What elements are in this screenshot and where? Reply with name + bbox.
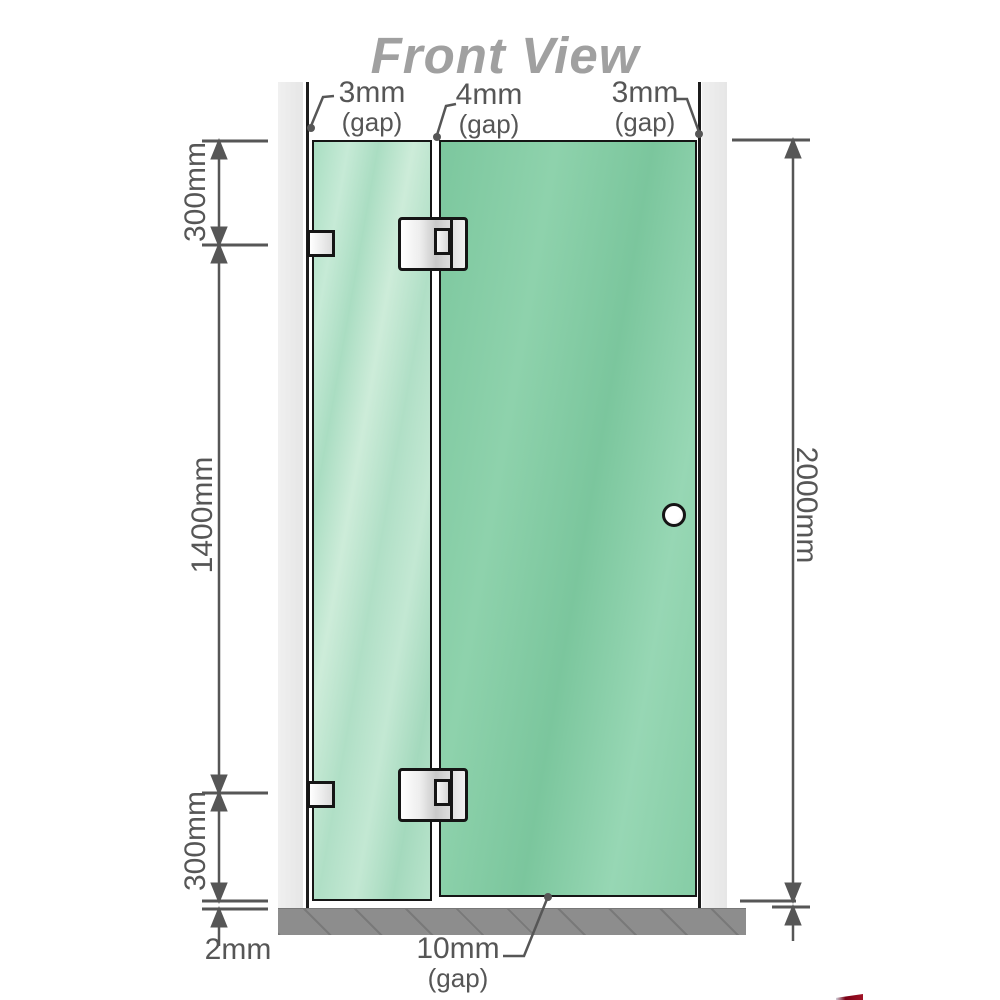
gap-left-value: 3mm bbox=[330, 78, 414, 109]
gap-middle-value: 4mm bbox=[447, 80, 531, 111]
dim-arrow-up bbox=[213, 794, 226, 810]
leader-dot bbox=[544, 893, 552, 901]
gap-left-label: (gap) bbox=[330, 109, 414, 136]
leader-dot bbox=[433, 133, 441, 141]
gap-annotation-bottom: 10mm (gap) bbox=[412, 934, 504, 991]
gap-bottom-value: 10mm bbox=[412, 934, 504, 965]
gap-right-value: 3mm bbox=[603, 78, 687, 109]
dimension-label-2000: 2000mm bbox=[789, 420, 823, 590]
dim-arrow-down bbox=[213, 776, 226, 792]
front-view-diagram: Front View bbox=[0, 0, 1000, 1000]
gap-middle-label: (gap) bbox=[447, 111, 531, 138]
dim-arrow-up bbox=[787, 141, 800, 157]
leader-dot bbox=[307, 124, 315, 132]
dimension-label-1400: 1400mm bbox=[186, 435, 220, 595]
leader-dot bbox=[695, 130, 703, 138]
gap-bottom-label: (gap) bbox=[412, 965, 504, 992]
gap-annotation-middle: 4mm (gap) bbox=[447, 80, 531, 137]
dimension-lines bbox=[0, 0, 1000, 1000]
leader-line-gap-bottom bbox=[503, 899, 547, 956]
dim-arrow-up bbox=[213, 142, 226, 158]
dim-arrow-down bbox=[787, 884, 800, 900]
gap-right-label: (gap) bbox=[603, 109, 687, 136]
dim-arrow-down bbox=[213, 228, 226, 244]
dim-arrow-up bbox=[213, 910, 226, 926]
dimension-label-2mm: 2mm bbox=[198, 933, 278, 967]
dim-arrow-up bbox=[787, 908, 800, 924]
dimension-label-300-bottom: 300mm bbox=[179, 776, 213, 906]
dimension-label-300-top: 300mm bbox=[179, 127, 213, 257]
gap-annotation-left: 3mm (gap) bbox=[330, 78, 414, 135]
dim-arrow-up bbox=[213, 246, 226, 262]
dim-arrow-down bbox=[213, 884, 226, 900]
gap-annotation-right: 3mm (gap) bbox=[603, 78, 687, 135]
